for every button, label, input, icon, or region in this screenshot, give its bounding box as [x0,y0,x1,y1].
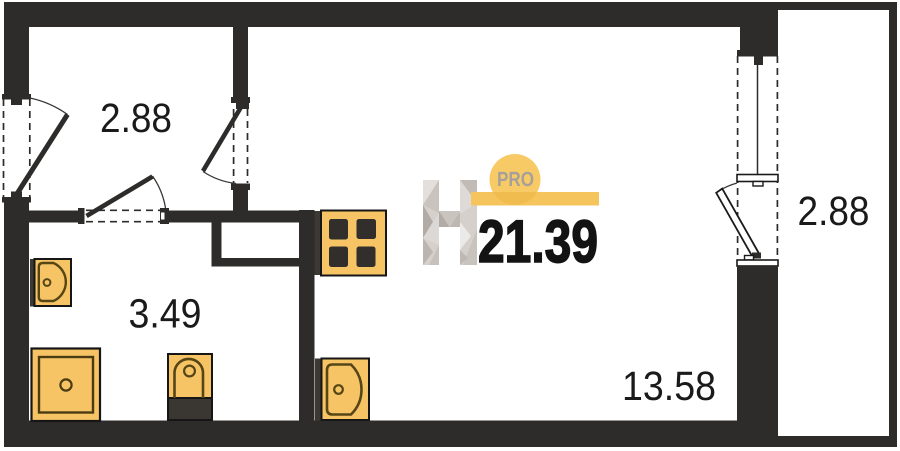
svg-text:21.39: 21.39 [478,208,598,275]
svg-text:2.88: 2.88 [798,188,870,234]
svg-text:3.49: 3.49 [129,291,202,337]
svg-text:2.88: 2.88 [100,95,172,141]
svg-text:13.58: 13.58 [622,363,716,409]
svg-text:PRO: PRO [497,168,534,191]
